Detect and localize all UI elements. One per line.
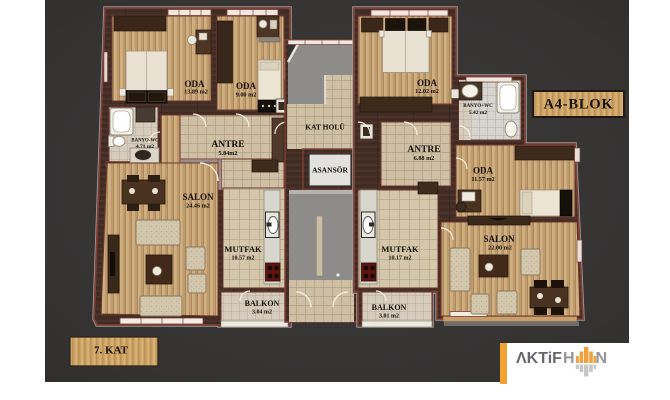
svg-text:ANTRE: ANTRE [211, 140, 244, 150]
svg-text:BALKON: BALKON [372, 303, 407, 312]
svg-text:3.01 m2: 3.01 m2 [379, 314, 399, 320]
svg-text:4.71 m2: 4.71 m2 [136, 144, 155, 150]
svg-text:SALON: SALON [182, 192, 214, 202]
svg-text:ΛKTiF: ΛKTiF [516, 350, 562, 367]
svg-text:11.57 m2: 11.57 m2 [471, 176, 494, 183]
svg-text:5.84m2: 5.84m2 [218, 150, 237, 157]
svg-text:A4-BLOK: A4-BLOK [543, 97, 613, 113]
svg-text:SALON: SALON [483, 234, 515, 244]
svg-text:ODA: ODA [473, 166, 494, 176]
svg-text:7. KAT: 7. KAT [94, 345, 129, 357]
svg-text:ODA: ODA [236, 81, 257, 91]
svg-text:H: H [563, 350, 575, 367]
svg-text:10.17 m2: 10.17 m2 [389, 256, 412, 262]
svg-text:6.88 m2: 6.88 m2 [414, 155, 435, 162]
svg-text:12.02 m2: 12.02 m2 [415, 88, 439, 95]
svg-text:N: N [596, 350, 608, 367]
svg-text:MUTFAK: MUTFAK [224, 244, 262, 254]
svg-text:BANYO+WC: BANYO+WC [463, 104, 493, 109]
svg-text:KAT HOLÜ: KAT HOLÜ [305, 123, 345, 132]
svg-text:ANTRE: ANTRE [407, 145, 440, 155]
svg-text:3.04 m2: 3.04 m2 [252, 310, 272, 316]
svg-text:9.00 m2: 9.00 m2 [236, 92, 257, 99]
svg-text:BALKON: BALKON [245, 299, 280, 308]
svg-text:13.89 m2: 13.89 m2 [184, 89, 208, 96]
svg-text:BANYO-WC: BANYO-WC [131, 139, 159, 144]
svg-text:ODA: ODA [417, 78, 438, 88]
svg-text:22.00 m2: 22.00 m2 [488, 245, 512, 252]
svg-text:ODA: ODA [185, 79, 206, 89]
svg-text:10.57 m2: 10.57 m2 [232, 256, 255, 262]
svg-text:5.42 m2: 5.42 m2 [469, 110, 488, 116]
svg-text:ASANSÖR: ASANSÖR [312, 166, 348, 175]
svg-text:24.46 m2: 24.46 m2 [186, 203, 210, 210]
svg-text:MUTFAK: MUTFAK [381, 244, 419, 254]
